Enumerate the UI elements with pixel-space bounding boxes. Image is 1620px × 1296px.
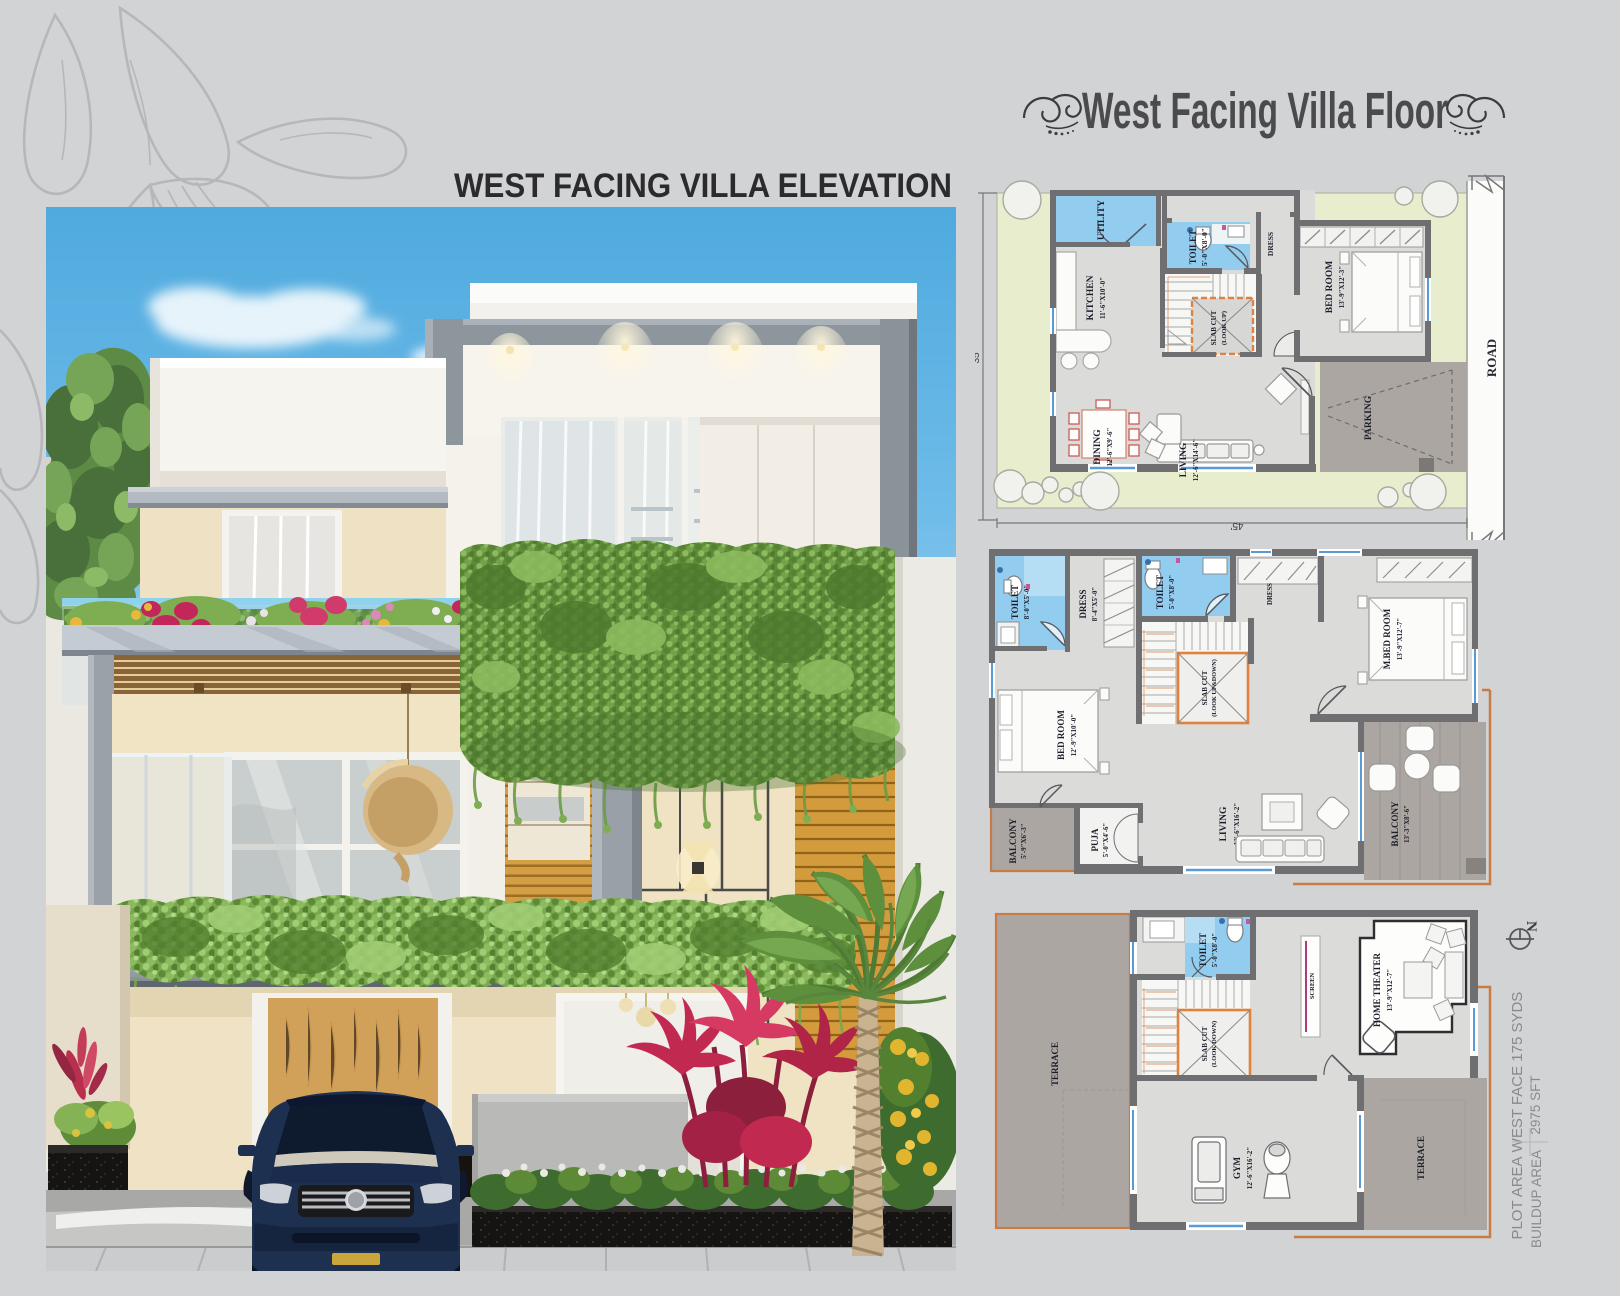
svg-text:12'-9"X10'-0": 12'-9"X10'-0" — [1070, 714, 1078, 756]
svg-text:PLOT AREA: PLOT AREA — [1509, 1156, 1526, 1239]
svg-text:SLAB CUT: SLAB CUT — [1201, 1026, 1209, 1061]
svg-text:LIVING: LIVING — [1219, 806, 1229, 841]
svg-text:2975 SFT: 2975 SFT — [1528, 1075, 1543, 1134]
svg-text:DRESS: DRESS — [1267, 583, 1274, 605]
svg-text:5'-0"X4'-6": 5'-0"X4'-6" — [1103, 823, 1110, 858]
svg-text:PUJA: PUJA — [1090, 828, 1100, 851]
svg-text:13'-9"X12'-7": 13'-9"X12'-7" — [1396, 618, 1404, 660]
svg-text:TERRACE: TERRACE — [1050, 1042, 1060, 1086]
svg-text:M.BED ROOM: M.BED ROOM — [1382, 608, 1392, 669]
svg-text:UTILITY: UTILITY — [1097, 200, 1107, 240]
svg-text:DRESS: DRESS — [1078, 589, 1088, 618]
svg-text:45': 45' — [1230, 520, 1243, 531]
svg-text:BALCONY: BALCONY — [1008, 818, 1018, 864]
svg-text:(LOOK UP): (LOOK UP) — [1221, 311, 1228, 345]
svg-text:GYM: GYM — [1232, 1157, 1242, 1180]
svg-text:SLAB CUT: SLAB CUT — [1201, 670, 1209, 705]
svg-text:DRESS: DRESS — [1266, 232, 1275, 256]
svg-text:ROAD: ROAD — [1484, 339, 1499, 377]
svg-text:West Facing Villa Floor: West Facing Villa Floor — [1082, 83, 1448, 140]
svg-text:WEST FACING VILLA ELEVATION: WEST FACING VILLA ELEVATION — [454, 166, 952, 204]
svg-text:WEST FACE 175 SYDS: WEST FACE 175 SYDS — [1509, 992, 1526, 1153]
svg-text:LIVING: LIVING — [1179, 442, 1189, 477]
svg-text:5'-0"X8'-0": 5'-0"X8'-0" — [1200, 228, 1209, 266]
svg-text:TOILET: TOILET — [1155, 575, 1165, 609]
svg-text:5'-0"X8'-0": 5'-0"X8'-0" — [1169, 575, 1176, 610]
svg-text:TOILET: TOILET — [1188, 230, 1198, 264]
svg-text:(LOOK DOWN): (LOOK DOWN) — [1211, 1021, 1218, 1067]
svg-text:DINING: DINING — [1093, 429, 1103, 465]
svg-text:(LOOK UP&DOWN): (LOOK UP&DOWN) — [1211, 659, 1218, 717]
svg-text:13'-3"X8'-6": 13'-3"X8'-6" — [1404, 805, 1411, 843]
svg-text:35': 35' — [975, 350, 982, 363]
svg-text:8'-4"X5'-0": 8'-4"X5'-0" — [1092, 587, 1099, 622]
svg-text:8'-0"X5'-0": 8'-0"X5'-0" — [1024, 585, 1031, 620]
svg-text:SCREEN: SCREEN — [1309, 973, 1316, 1000]
svg-text:11'-6"X10'-0": 11'-6"X10'-0" — [1099, 277, 1107, 319]
svg-text:13'-9"X12'-7": 13'-9"X12'-7" — [1386, 969, 1394, 1011]
svg-text:12'-6"X16'-2": 12'-6"X16'-2" — [1246, 1147, 1254, 1189]
svg-text:BALCONY: BALCONY — [1390, 801, 1400, 847]
svg-text:12'-6"X9'-6": 12'-6"X9'-6" — [1106, 427, 1114, 466]
svg-text:N: N — [1523, 921, 1539, 932]
svg-text:TOILET: TOILET — [1198, 933, 1208, 967]
svg-text:BUILDUP AREA: BUILDUP AREA — [1529, 1150, 1544, 1248]
svg-text:5'-0"X8'-0": 5'-0"X8'-0" — [1212, 933, 1219, 968]
svg-text:BED ROOM: BED ROOM — [1325, 261, 1335, 314]
svg-text:KITCHEN: KITCHEN — [1086, 275, 1096, 320]
svg-text:HOME THEATER: HOME THEATER — [1372, 953, 1382, 1027]
svg-text:13'-9"X12'-3": 13'-9"X12'-3" — [1338, 266, 1346, 308]
svg-text:12'-6"X14'-6": 12'-6"X14'-6" — [1192, 439, 1200, 481]
svg-text:SLAB CUT: SLAB CUT — [1210, 310, 1218, 345]
svg-text:TOILET: TOILET — [1010, 585, 1020, 619]
svg-text:PARKING: PARKING — [1364, 395, 1374, 440]
svg-text:TERRACE: TERRACE — [1416, 1136, 1426, 1180]
svg-text:BED ROOM: BED ROOM — [1056, 710, 1066, 760]
svg-text:5'-9"X6'-3": 5'-9"X6'-3" — [1020, 823, 1028, 858]
